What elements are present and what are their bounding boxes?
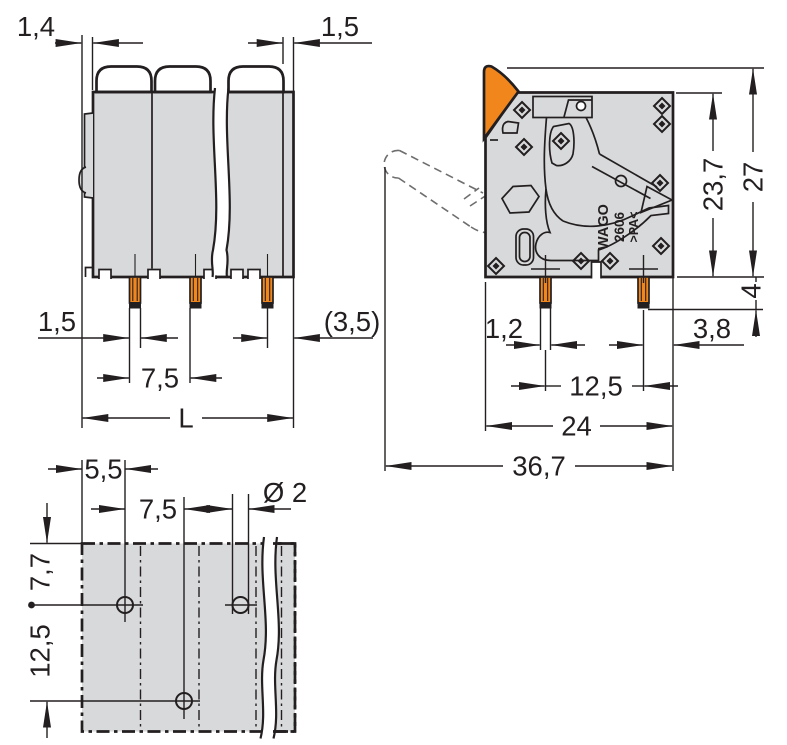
dim-label-hole-pitch: 7,5 (139, 494, 177, 525)
dim-label-hole-diameter: Ø 2 (263, 477, 307, 508)
drill-view: 5,5 7,5 Ø 2 7,7 12,5 (25, 454, 308, 739)
dim-label-edge-to-hole: 5,5 (84, 454, 122, 485)
dim-label-clamp-height: 23,7 (698, 158, 729, 212)
dim-label-pin-width: 1,5 (38, 306, 76, 337)
dim-label-row-offset: 7,7 (25, 553, 56, 591)
dim-label-length: L (178, 403, 193, 434)
side-latch (79, 113, 93, 277)
dim-label-pin-protrusion: 4 (736, 283, 767, 298)
dim-label-end-distance: (3,5) (324, 306, 381, 337)
dim-label-row-spacing: 12,5 (25, 624, 56, 678)
marking-series: 2606 (612, 211, 627, 242)
clamp-lever-dashed (384, 150, 484, 232)
dim-label-wall-right: 1,5 (321, 11, 359, 42)
housing-side (486, 93, 674, 278)
front-view: 1,4 1,5 1,5 7,5 (3,5) L (17, 11, 380, 434)
dimension-origin-dot (28, 602, 35, 609)
technical-drawing: 1,4 1,5 1,5 7,5 (3,5) L (0, 0, 787, 745)
solder-pins-front (129, 277, 274, 309)
dim-label-housing-depth: 24 (561, 411, 592, 442)
dim-label-wall-left: 1,4 (17, 11, 55, 42)
side-view: WAGO 2606 >PA< (384, 66, 768, 481)
bottom-notch (591, 262, 602, 279)
dim-label-pin-row-spacing: 12,5 (569, 371, 623, 402)
dim-label-pitch: 7,5 (141, 363, 179, 394)
push-button-2 (155, 67, 211, 93)
push-buttons (97, 67, 284, 93)
push-button-3 (229, 67, 284, 93)
dim-label-pin-to-edge: 3,8 (693, 313, 731, 344)
dim-label-total-height: 27 (738, 162, 769, 193)
dim-label-pin-width-side: 1,2 (485, 313, 523, 344)
push-button-1 (97, 67, 152, 93)
dim-label-total-depth: 36,7 (512, 451, 566, 482)
marking-brand: WAGO (596, 204, 612, 250)
marking-material: >PA< (627, 211, 641, 242)
housing-body (93, 92, 294, 277)
